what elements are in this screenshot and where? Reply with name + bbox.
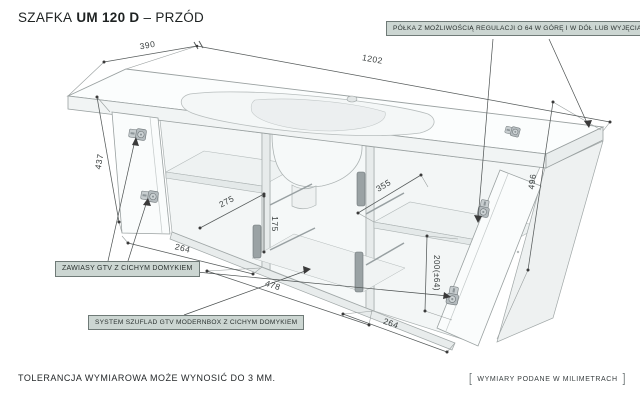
- callout-drawers: SYSTEM SZUFLAD GTV MODERNBOX Z CICHYM DO…: [88, 315, 304, 330]
- shelf-pin: [517, 251, 519, 253]
- callout-hinges: ZAWIASY GTV Z CICHYM DOMYKIEM: [55, 261, 200, 277]
- dim-shelf-adjust: 200(±64): [432, 255, 441, 291]
- bracket-open: [: [469, 373, 472, 387]
- faucet-hole: [347, 96, 357, 102]
- title-view: – PRZÓD: [143, 10, 204, 25]
- dim-top-depth: 390: [139, 39, 156, 52]
- callout-shelf: PÓŁKA Z MOŻLIWOŚCIĄ REGULACJI O 64 W GÓR…: [386, 21, 640, 36]
- technical-drawing-page: 390 1202 437 264 275 175 478 355 200(±64…: [0, 0, 640, 400]
- units-note-text: WYMIARY PODANE W MILIMETRACH: [477, 376, 617, 383]
- bracket-close: ]: [623, 373, 626, 387]
- page-title: SZAFKA UM 120 D – PRZÓD: [18, 10, 204, 25]
- title-product: SZAFKA: [18, 10, 72, 25]
- title-model: UM 120 D: [76, 10, 139, 25]
- dim-left-height: 437: [93, 153, 106, 170]
- tolerance-note: TOLERANCJA WYMIAROWA MOŻE WYNOSIĆ DO 3 M…: [18, 373, 276, 383]
- dim-top-width: 1202: [361, 52, 383, 65]
- dim-drawer-height: 175: [270, 216, 280, 232]
- units-note: [ WYMIARY PODANE W MILIMETRACH ]: [469, 374, 626, 385]
- cabinet-drawing: 390 1202 437 264 275 175 478 355 200(±64…: [0, 0, 640, 400]
